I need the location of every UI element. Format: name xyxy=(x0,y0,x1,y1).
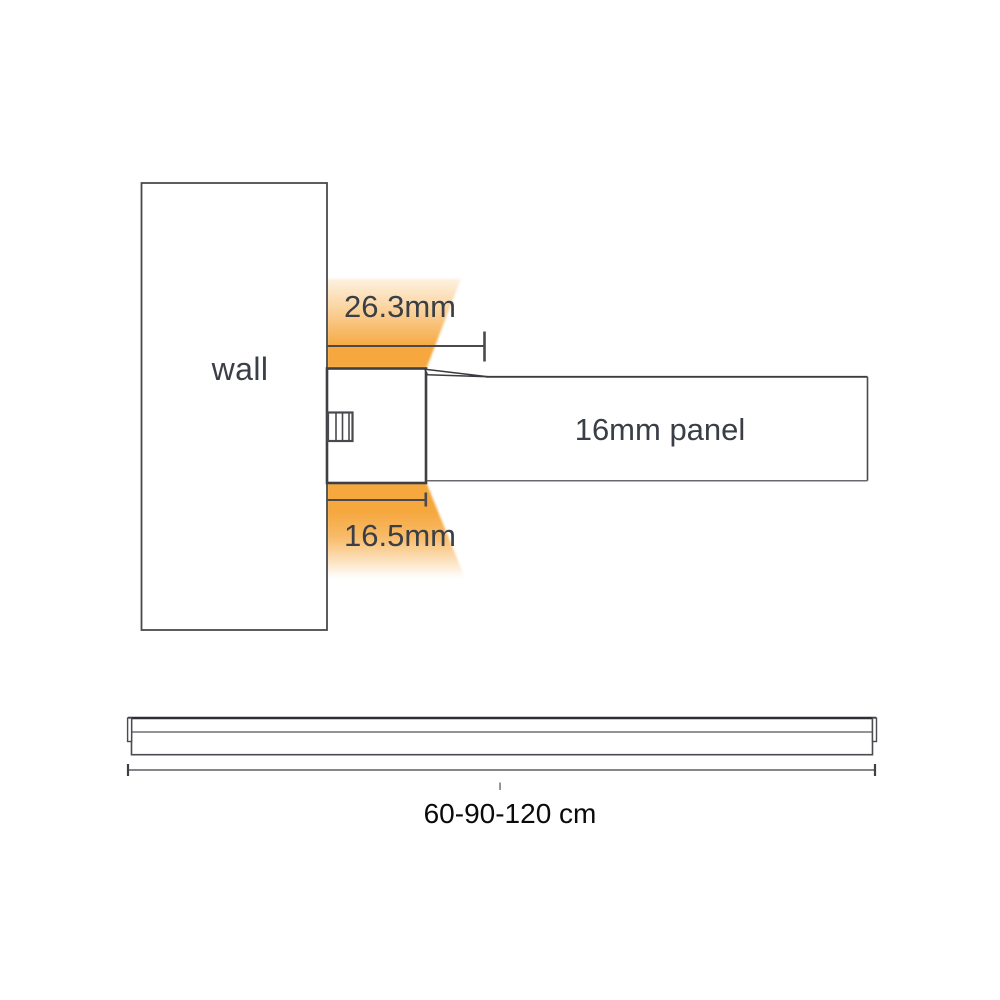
svg-text:60-90-120 cm: 60-90-120 cm xyxy=(424,798,597,829)
svg-text:16.5mm: 16.5mm xyxy=(344,518,456,553)
svg-text:wall: wall xyxy=(211,351,269,387)
svg-text:16mm panel: 16mm panel xyxy=(575,412,746,447)
svg-text:I: I xyxy=(498,781,501,793)
svg-text:26.3mm: 26.3mm xyxy=(344,289,456,324)
